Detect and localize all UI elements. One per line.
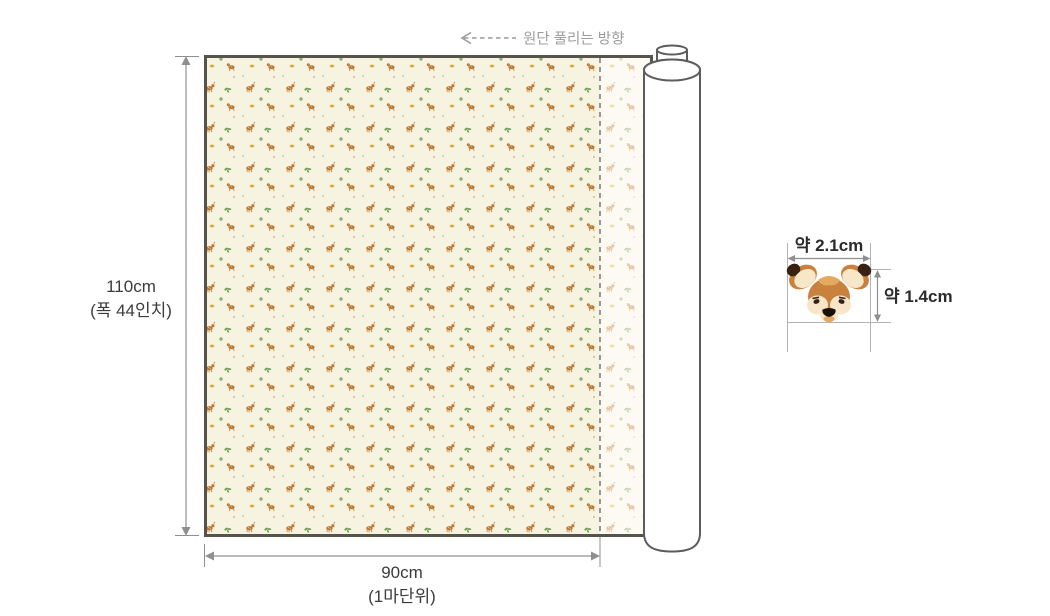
arrow-left-icon	[205, 552, 214, 561]
dashed-arrow-left-icon	[462, 33, 516, 44]
motif-width-label: 약 2.1cm	[795, 235, 864, 255]
motif-height-label: 약 1.4cm	[884, 286, 953, 306]
arrow-left-icon	[788, 255, 796, 262]
diagram-canvas: 원단 풀리는 방향 110cm (폭 44인치) 90cm (1마단위) 약 2…	[0, 0, 1050, 616]
arrow-up-icon	[182, 56, 191, 65]
fabric-width-note: (폭 44인치)	[90, 301, 172, 320]
arrow-down-icon	[182, 527, 191, 536]
fabric-length-note: (1마단위)	[368, 587, 436, 606]
arrow-down-icon	[874, 315, 881, 323]
fabric-length-dimension: 90cm (1마단위)	[205, 537, 601, 606]
roll-top-rim	[644, 60, 700, 81]
unroll-direction-annotation: 원단 풀리는 방향	[462, 31, 624, 48]
roll-body	[644, 60, 700, 552]
motif-size-diagram: 약 2.1cm 약 1.4cm	[784, 235, 952, 352]
fabric-width-dimension: 110cm (폭 44인치)	[90, 56, 199, 536]
fabric-length-value: 90cm	[381, 563, 423, 582]
fabric-spec-diagram: 원단 풀리는 방향 110cm (폭 44인치) 90cm (1마단위) 약 2…	[0, 0, 1050, 616]
fabric-roll	[644, 46, 700, 552]
fabric-panel	[206, 57, 652, 536]
unroll-direction-label: 원단 풀리는 방향	[523, 31, 624, 48]
arrow-right-icon	[863, 255, 871, 262]
fabric-pattern-area	[207, 58, 600, 535]
arrow-up-icon	[874, 270, 881, 278]
deer-face-illustration	[784, 260, 873, 323]
arrow-right-icon	[591, 552, 600, 561]
fabric-width-value: 110cm	[106, 277, 156, 296]
